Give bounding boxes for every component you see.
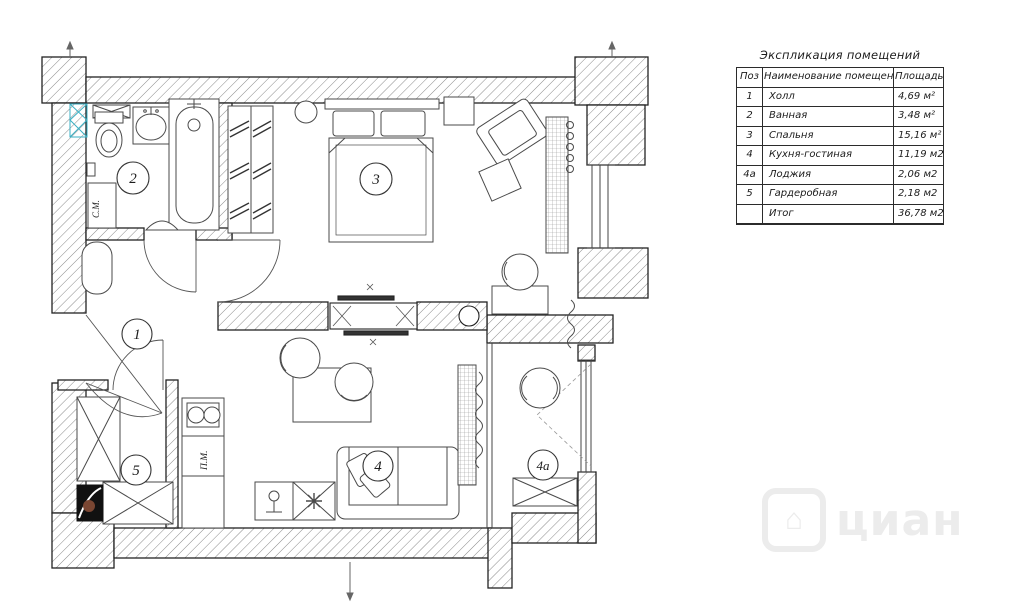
svg-text:2: 2 <box>129 171 137 187</box>
wall-column-icon <box>459 306 479 326</box>
row-name: Лоджия <box>763 166 894 186</box>
bathroom-door <box>144 240 196 292</box>
hall-furniture <box>82 242 112 294</box>
row-pos: 3 <box>737 127 763 147</box>
kitchen-furniture: П.М. <box>182 338 483 528</box>
room-number-wardrobe: 5 <box>121 455 151 485</box>
bedroom-window <box>587 165 615 248</box>
row-pos: 2 <box>737 107 763 127</box>
counter-icon <box>182 476 224 528</box>
row-pos <box>737 205 763 225</box>
row-name: Кухня-гостиная <box>763 146 894 166</box>
sink-icon <box>133 107 170 144</box>
safe-icon <box>77 485 103 521</box>
round-chair-icon <box>492 254 548 314</box>
stool-icon <box>295 101 317 123</box>
kitchen-sink-icon <box>255 482 293 520</box>
dishwasher-icon: П.М. <box>182 436 224 476</box>
radiator-grille-icon <box>458 365 476 485</box>
svg-text:5: 5 <box>132 463 140 479</box>
wardrobe-icon <box>103 482 173 524</box>
bathtub-icon <box>169 99 219 230</box>
svg-text:3: 3 <box>371 172 380 188</box>
row-pos: 4 <box>737 146 763 166</box>
row-pos: 4а <box>737 166 763 186</box>
loggia-partition <box>487 343 492 528</box>
dishwasher-label: П.М. <box>200 450 210 471</box>
radiator-icon <box>476 372 483 468</box>
column-header-area: Площадь <box>894 68 943 88</box>
washing-machine-icon: С.М. <box>88 183 116 228</box>
room-number-kitchen: 4 <box>363 451 393 481</box>
wardrobe-icon <box>77 397 120 481</box>
row-area: 11,19 м2 <box>894 146 943 166</box>
nightstand-icon <box>444 97 474 125</box>
loggia-furniture <box>513 368 577 506</box>
bathroom-fixtures: С.М. <box>70 99 219 230</box>
row-name: Холл <box>763 88 894 108</box>
wall-fixture-icon <box>87 163 95 176</box>
row-area: 2,06 м2 <box>894 166 943 186</box>
explication-block: Экспликация помещений Поз Наименование п… <box>736 48 944 225</box>
row-pos: 1 <box>737 88 763 108</box>
row-name: Гардеробная <box>763 185 894 205</box>
room-number-hall: 1 <box>122 319 152 349</box>
papasan-chair-icon <box>520 368 560 408</box>
row-name: Ванная <box>763 107 894 127</box>
svg-text:4: 4 <box>374 459 382 475</box>
explication-title: Экспликация помещений <box>736 48 944 62</box>
toilet-icon <box>95 112 123 157</box>
room-number-bathroom: 2 <box>117 162 149 194</box>
radiator-grille-icon <box>546 117 568 253</box>
bench-icon <box>82 242 112 294</box>
row-area: 36,78 м2 <box>894 205 943 225</box>
row-area: 15,16 м² <box>894 127 943 147</box>
loggia-cabinet-icon <box>513 478 577 506</box>
row-area: 3,48 м² <box>894 107 943 127</box>
column-header-name: Наименование помещений <box>763 68 894 88</box>
room-number-bedroom: 3 <box>360 163 392 195</box>
washing-machine-label: С.М. <box>91 200 101 218</box>
row-area: 2,18 м2 <box>894 185 943 205</box>
row-area: 4,69 м² <box>894 88 943 108</box>
sofa-icon <box>337 447 459 519</box>
svg-text:1: 1 <box>133 327 141 343</box>
explication-table: Поз Наименование помещений Площадь 1 Хол… <box>736 67 944 225</box>
bedroom-door <box>218 240 280 302</box>
row-name: Итог <box>763 205 894 225</box>
row-name: Спальня <box>763 127 894 147</box>
closet-wardrobe <box>228 106 273 233</box>
dining-chair-icon <box>335 363 373 401</box>
room-number-loggia: 4а <box>528 450 558 480</box>
dining-chair-icon <box>280 338 320 378</box>
svg-text:4а: 4а <box>537 458 551 473</box>
stove-icon <box>182 398 224 436</box>
column-header-pos: Поз <box>737 68 763 88</box>
side-table-icon <box>479 159 521 201</box>
hob-icon <box>293 482 335 520</box>
row-pos: 5 <box>737 185 763 205</box>
armchair-icon <box>475 97 549 167</box>
